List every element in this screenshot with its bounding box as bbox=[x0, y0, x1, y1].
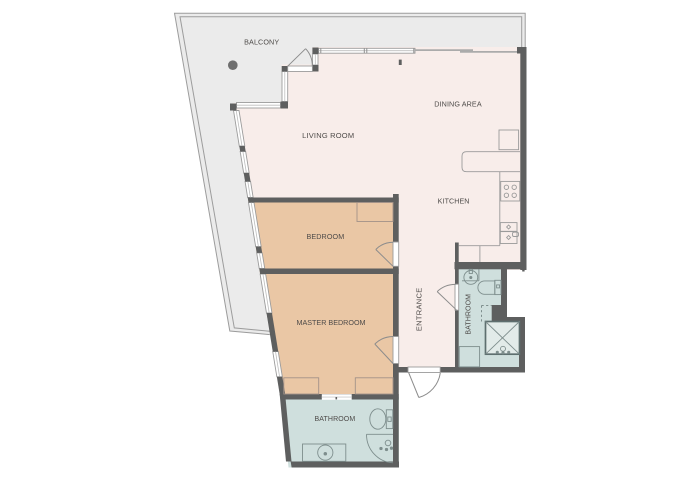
svg-text:BATHROOM: BATHROOM bbox=[466, 294, 473, 335]
svg-text:BATHROOM: BATHROOM bbox=[315, 416, 356, 423]
svg-text:BALCONY: BALCONY bbox=[244, 38, 279, 47]
svg-text:KITCHEN: KITCHEN bbox=[438, 198, 470, 206]
svg-text:DINING AREA: DINING AREA bbox=[434, 100, 482, 109]
svg-text:ENTRANCE: ENTRANCE bbox=[415, 287, 424, 331]
svg-text:BEDROOM: BEDROOM bbox=[306, 232, 344, 241]
svg-text:MASTER BEDROOM: MASTER BEDROOM bbox=[296, 318, 365, 327]
svg-text:LIVING ROOM: LIVING ROOM bbox=[302, 131, 354, 140]
